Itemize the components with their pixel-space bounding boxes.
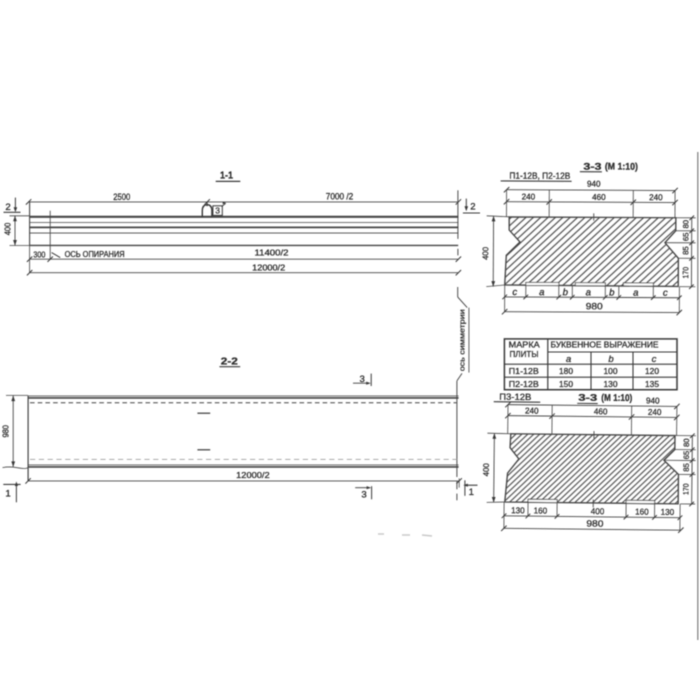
svg-text:(М 1:10): (М 1:10) [601, 393, 632, 404]
svg-text:980: 980 [1, 425, 10, 438]
svg-text:460: 460 [592, 192, 606, 202]
svg-text:c: c [663, 288, 668, 299]
svg-text:300: 300 [33, 250, 45, 260]
svg-text:160: 160 [635, 507, 649, 517]
svg-text:160: 160 [534, 505, 548, 515]
svg-text:400: 400 [482, 463, 491, 477]
svg-text:135: 135 [645, 379, 659, 389]
svg-text:940: 940 [587, 179, 601, 189]
svg-text:12000/2: 12000/2 [252, 262, 285, 272]
svg-text:65: 65 [682, 451, 691, 460]
svg-text:ПЛИТЫ: ПЛИТЫ [510, 350, 539, 359]
svg-text:7000 /2: 7000 /2 [326, 192, 354, 202]
svg-text:a: a [633, 288, 638, 299]
svg-text:12000/2: 12000/2 [236, 470, 270, 480]
svg-text:1: 1 [469, 487, 474, 498]
svg-text:150: 150 [559, 379, 573, 389]
svg-text:2500: 2500 [113, 192, 130, 202]
svg-text:130: 130 [511, 505, 525, 515]
svg-text:980: 980 [586, 301, 603, 311]
svg-text:1: 1 [5, 488, 10, 499]
svg-text:a: a [539, 287, 544, 298]
svg-text:b: b [609, 288, 615, 299]
svg-text:ось симметрии: ось симметрии [457, 309, 466, 371]
svg-text:240: 240 [649, 192, 663, 202]
svg-text:85: 85 [682, 463, 691, 472]
svg-text:120: 120 [645, 366, 659, 376]
svg-text:180: 180 [559, 366, 573, 376]
svg-text:400: 400 [481, 246, 490, 259]
svg-text:11400/2: 11400/2 [255, 247, 289, 257]
svg-text:a: a [586, 287, 591, 298]
svg-text:П1-12В, П2-12В: П1-12В, П2-12В [509, 171, 570, 181]
svg-text:80: 80 [682, 438, 691, 447]
svg-text:b: b [608, 354, 614, 365]
svg-text:3: 3 [215, 206, 220, 216]
svg-text:170: 170 [681, 483, 690, 495]
svg-text:80: 80 [681, 220, 690, 229]
svg-text:П3-12В: П3-12В [499, 392, 531, 402]
svg-text:П2-12В: П2-12В [509, 379, 539, 389]
svg-text:МАРКА: МАРКА [509, 341, 541, 350]
svg-text:3: 3 [361, 489, 366, 500]
svg-text:(М 1:10): (М 1:10) [605, 161, 638, 172]
svg-text:3-3: 3-3 [583, 162, 601, 173]
svg-text:940: 940 [646, 395, 660, 405]
svg-text:100: 100 [604, 366, 618, 376]
svg-text:c: c [652, 354, 657, 365]
svg-text:400: 400 [591, 506, 605, 516]
svg-text:3-3: 3-3 [578, 393, 597, 404]
svg-text:65: 65 [681, 232, 690, 241]
svg-text:460: 460 [594, 406, 608, 416]
svg-text:400: 400 [3, 222, 12, 235]
svg-text:2-2: 2-2 [221, 356, 238, 367]
svg-text:240: 240 [648, 407, 662, 417]
svg-text:2: 2 [470, 201, 475, 212]
svg-text:170: 170 [681, 267, 690, 279]
svg-text:b: b [563, 287, 569, 298]
svg-text:240: 240 [522, 191, 536, 201]
svg-text:a: a [566, 354, 571, 365]
svg-text:980: 980 [586, 518, 603, 528]
svg-text:130: 130 [661, 507, 675, 517]
svg-text:БУКВЕННОЕ ВЫРАЖЕНИЕ: БУКВЕННОЕ ВЫРАЖЕНИЕ [551, 341, 660, 350]
svg-text:1-1: 1-1 [220, 171, 233, 182]
svg-text:2: 2 [5, 202, 10, 213]
svg-text:85: 85 [681, 246, 690, 255]
svg-text:ОСЬ ОПИРАНИЯ: ОСЬ ОПИРАНИЯ [65, 250, 125, 259]
svg-text:П1-12В: П1-12В [509, 366, 539, 376]
svg-text:240: 240 [525, 406, 539, 416]
svg-text:130: 130 [604, 379, 618, 389]
svg-text:c: c [512, 287, 517, 298]
